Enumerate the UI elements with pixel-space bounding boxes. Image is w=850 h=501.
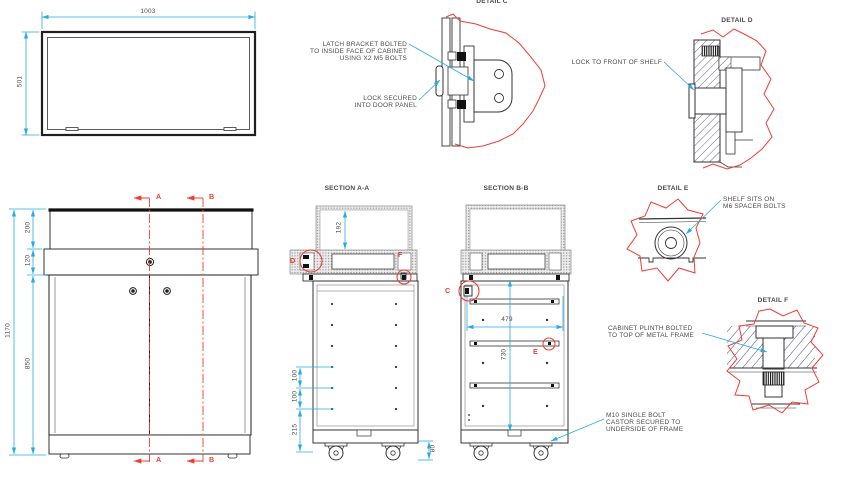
section-cut-b-top: B — [209, 193, 214, 200]
detail-f-marker: F — [398, 251, 403, 258]
elevation-band-dim: 120 — [25, 244, 32, 278]
detail-c-drawing — [409, 14, 545, 148]
castor — [325, 443, 404, 460]
shelf-lock-leader — [664, 62, 694, 90]
section-cut-a-top: A — [156, 193, 161, 200]
plan-width-dim: 1003 — [128, 8, 168, 15]
detail-d-marker: D — [290, 257, 295, 264]
section-aa-pitch2-dim: 100 — [292, 380, 299, 414]
m10-castor-note: M10 SINGLE BOLT CASTOR SECURED TO UNDERS… — [606, 412, 706, 433]
castor-foot — [228, 454, 237, 458]
elevation-total-height-dim: 1170 — [5, 314, 12, 348]
detail-c-marker: C — [445, 287, 450, 294]
drawing-sheet: 1003 501 1170 200 120 850 A B A B SECTIO… — [0, 0, 850, 501]
section-cut-b-bottom: B — [209, 456, 214, 463]
detail-c-title: DETAIL C — [450, 0, 534, 5]
detail-e-drawing — [627, 199, 721, 281]
plan-view — [22, 12, 255, 135]
plan-hinge-left — [66, 128, 78, 131]
section-bb-title: SECTION B-B — [456, 185, 556, 192]
section-bb-width-dim: 479 — [487, 316, 527, 323]
detail-d-drawing — [664, 29, 774, 169]
spacer-leader — [686, 200, 721, 234]
section-aa — [290, 206, 433, 460]
detail-c-latch-note: LATCH BRACKET BOLTED TO INSIDE FACE OF C… — [289, 41, 407, 62]
section-aa-shelf-dim: 192 — [336, 211, 343, 245]
plan-depth-dim: 501 — [17, 65, 24, 99]
section-aa-castor-dim: 80 — [430, 432, 437, 466]
castor — [470, 443, 552, 460]
detail-d-note: LOCK TO FRONT OF SHELF — [560, 59, 662, 66]
detail-c-lock-note: LOCK SECURED INTO DOOR PANEL — [329, 95, 417, 109]
detail-f-title: DETAIL F — [731, 297, 815, 304]
detail-d-title: DETAIL D — [695, 17, 779, 24]
elevation-doors-dim: 850 — [25, 347, 32, 381]
detail-e-marker: E — [533, 348, 538, 355]
section-aa-bottom-dim: 215 — [292, 413, 299, 447]
detail-e-note: SHELF SITS ON M6 SPACER BOLTS — [723, 196, 807, 210]
plan-hinge-right — [224, 128, 236, 131]
castor-foot — [60, 454, 69, 458]
detail-f-plinth-note: CABINET PLINTH BOLTED TO TOP OF METAL FR… — [608, 325, 708, 339]
elevation-top-dim: 200 — [25, 211, 32, 245]
section-bb-height-dim: 730 — [501, 338, 508, 372]
detail-f-drawing — [702, 309, 823, 413]
front-elevation — [9, 198, 258, 462]
section-aa-title: SECTION A-A — [297, 185, 397, 192]
drawing-canvas — [0, 0, 850, 501]
section-bb — [459, 205, 604, 460]
section-cut-a-bottom: A — [156, 456, 161, 463]
detail-e-title: DETAIL E — [631, 185, 715, 192]
